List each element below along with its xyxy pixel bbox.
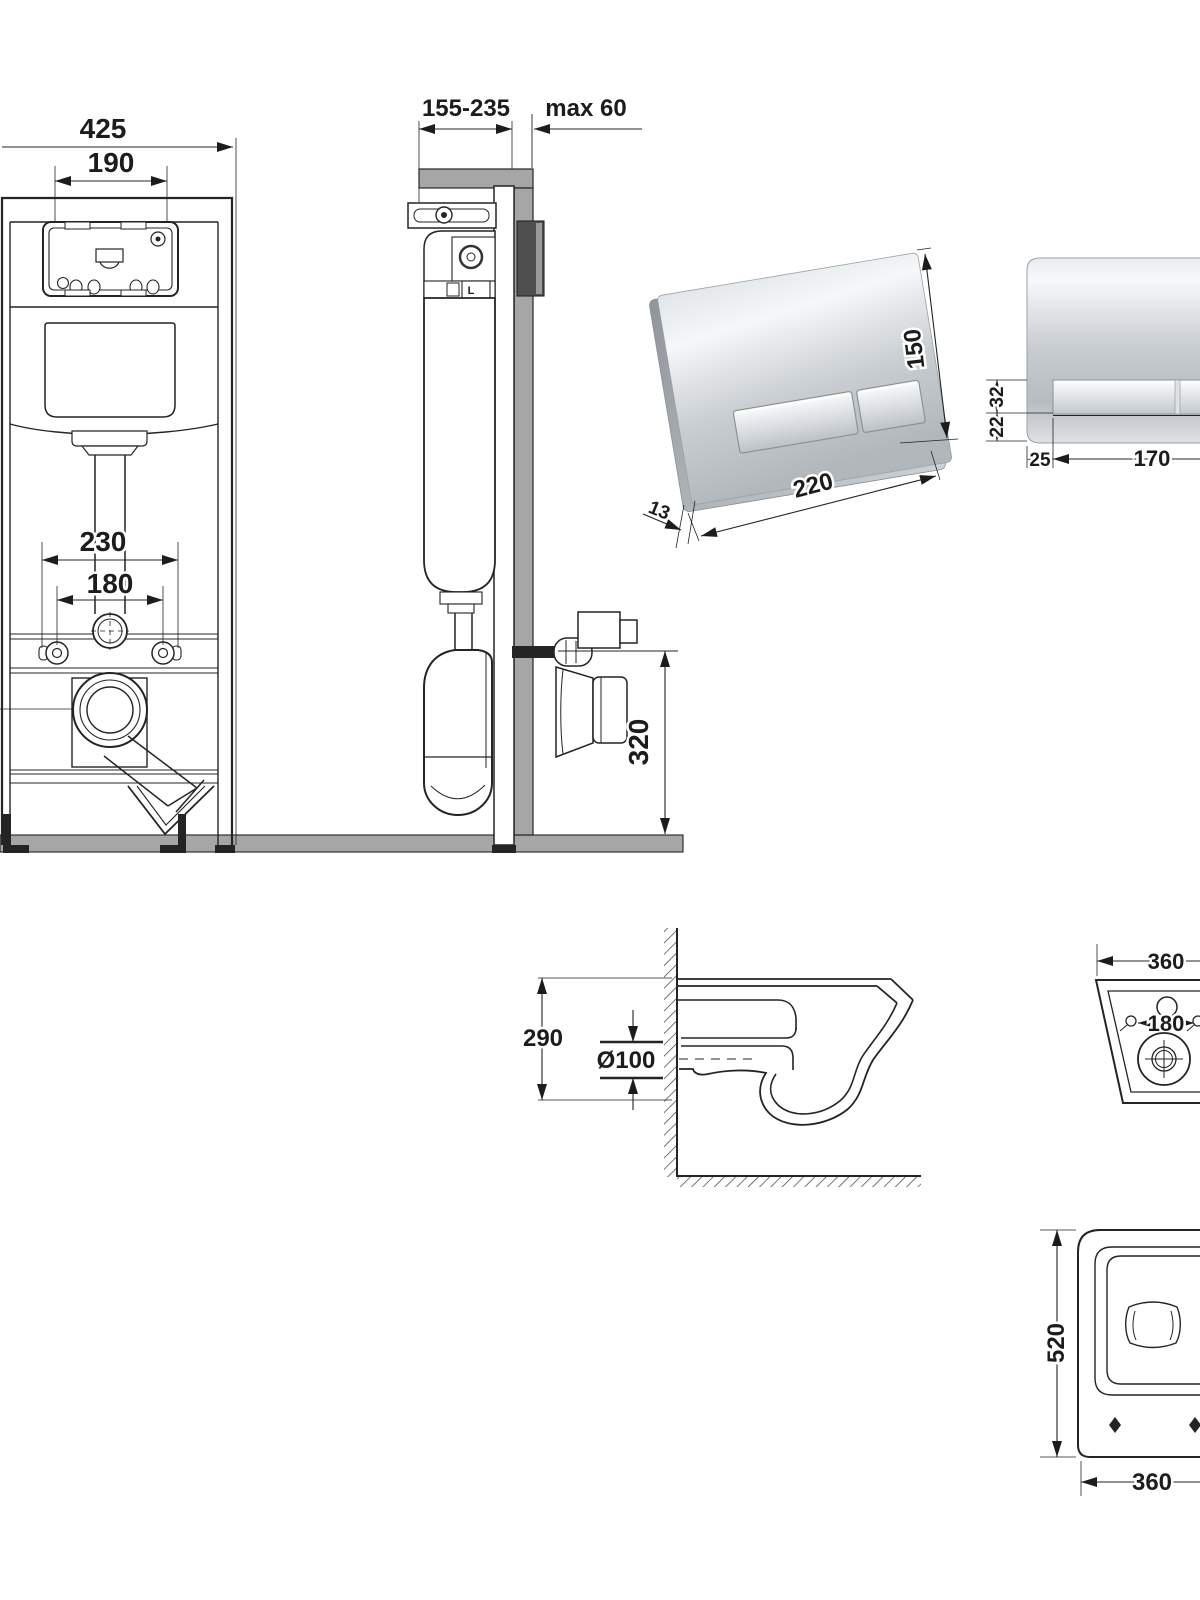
drain-funnel	[128, 786, 214, 834]
fixing-marker-right	[1189, 1417, 1200, 1433]
plate-face	[657, 252, 952, 505]
dim-plate-thickness: 13	[645, 497, 672, 524]
toilet-bowl-profile	[677, 979, 913, 1125]
flush-pipe-connector	[91, 612, 129, 650]
fixing-hole-left	[1126, 1016, 1136, 1026]
installation-diagram: 425 190	[0, 0, 1200, 1600]
toilet-side-section-view: 290 Ø100	[523, 928, 921, 1187]
cistern-tank	[45, 323, 175, 417]
dim-plate-height: 150	[899, 327, 931, 370]
bottom-body-outline	[1078, 1230, 1200, 1457]
flush-plate-front-view: 32 22 25 170	[986, 258, 1200, 471]
dim-drain-diameter: Ø100	[597, 1047, 656, 1074]
bottom-drain-outline	[1126, 1302, 1181, 1348]
drain-elbow-side	[424, 650, 492, 815]
cistern-access-window	[43, 222, 178, 296]
toilet-bottom-view: 520 360	[1040, 1230, 1200, 1496]
dim-bottom-width: 360	[1132, 1469, 1172, 1496]
wall-top-ledge	[419, 169, 533, 188]
valve-label: L	[468, 285, 475, 297]
dim-mounting-depth: 155-235	[422, 95, 510, 122]
dim-button-height: 32	[987, 386, 1008, 407]
flush-plate-3d-view: 150 220 13	[643, 248, 958, 548]
technical-drawing-sheet: 425 190	[0, 0, 1200, 1600]
dim-frame-opening: 190	[88, 147, 135, 178]
dim-side-margin: 25	[1029, 450, 1051, 471]
wall-bracket	[408, 203, 496, 228]
frame-front-view: 425 190	[0, 113, 236, 853]
frame-side-view: 155-235 max 60 L	[408, 95, 678, 853]
fixing-hole-right	[1193, 1016, 1200, 1026]
flush-valve-clamp	[96, 249, 123, 262]
button-divider	[1175, 380, 1180, 414]
dim-outlet-height: 320	[623, 719, 654, 766]
dim-bolt-spacing-inner: 180	[87, 568, 134, 599]
fixing-bolt	[512, 646, 556, 658]
dim-below-gap: 22	[987, 416, 1008, 437]
wall-hatching	[664, 928, 677, 1177]
dim-frame-width: 425	[80, 113, 127, 144]
floor-hatching	[677, 1176, 921, 1187]
dim-bolt-spacing-outer: 230	[80, 526, 127, 557]
toilet-rear-view: 360 180	[1096, 944, 1200, 1103]
dim-rear-width: 360	[1148, 949, 1185, 974]
dim-bottom-depth: 520	[1043, 1323, 1070, 1363]
cistern-side: L	[424, 231, 495, 650]
frame-foot-left	[3, 814, 29, 853]
rear-drain-hole	[1138, 1033, 1190, 1085]
fixing-marker-left	[1109, 1417, 1121, 1433]
dim-max-wall: max 60	[545, 95, 626, 122]
dim-buttons-width: 170	[1134, 446, 1171, 471]
drain-bend-front	[0, 673, 204, 812]
dim-mounting-height: 290	[523, 1025, 563, 1052]
floor-slab	[0, 835, 683, 852]
frame-rail-side	[494, 186, 514, 845]
